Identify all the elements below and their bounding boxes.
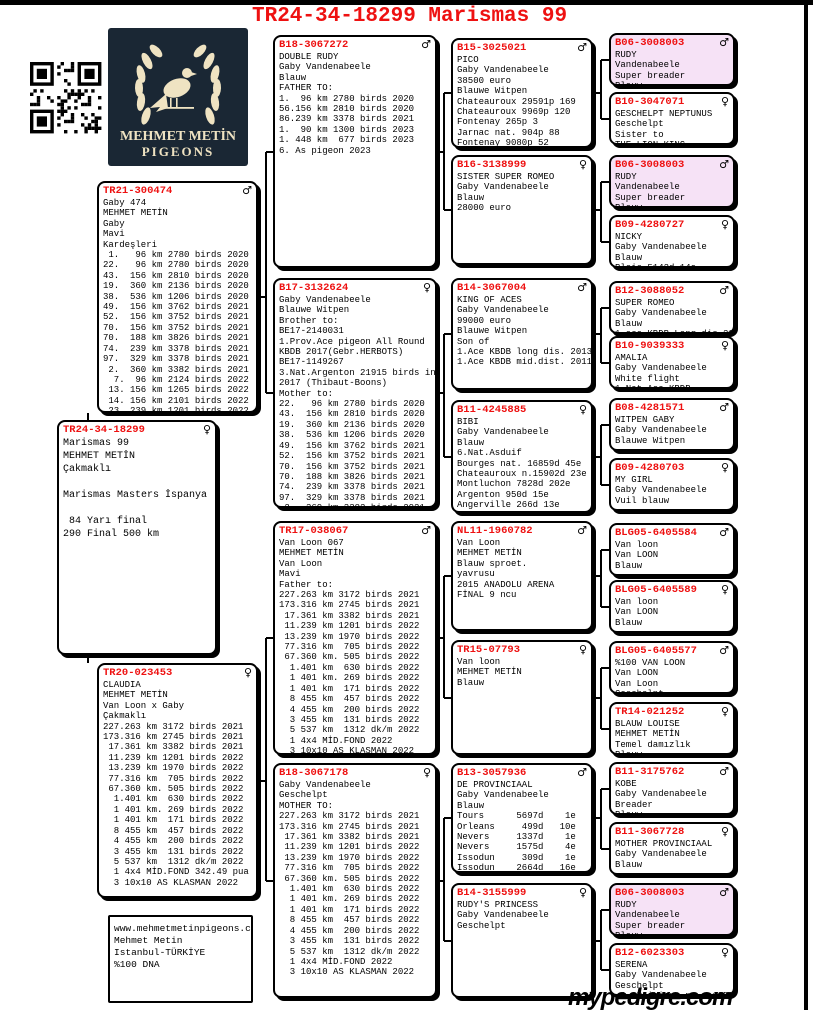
sex-symbol: ♂ <box>577 767 587 778</box>
ring-number: B13-3057936 <box>457 767 526 779</box>
pedigree-connector <box>601 59 609 61</box>
pedigree-connector <box>444 456 451 458</box>
ring-number: B15-3025021 <box>457 42 526 54</box>
box-details: Gaby Vandenabeele Geschelpt MOTHER TO: 2… <box>279 780 431 978</box>
box-details: WITPEN GABY Gaby Vandenabeele Blauwe Wit… <box>615 415 729 446</box>
ring-number: BLG05-6405589 <box>615 584 697 596</box>
ring-number: B10-9039333 <box>615 340 684 352</box>
pigeon-box-B11-3067728-g14: B11-3067728♀MOTHER PROVINCIAAL Gaby Vand… <box>609 822 735 875</box>
pedigree-connector <box>266 151 274 153</box>
sex-symbol: ♂ <box>577 525 587 536</box>
sex-symbol: ♂ <box>242 185 252 196</box>
box-details: NICKY Gaby Vandenabeele Blauw Blois 5142… <box>615 232 729 268</box>
sex-symbol: ♀ <box>579 404 587 415</box>
ring-number: B11-3067728 <box>615 826 684 838</box>
pedigree-connector <box>600 425 602 485</box>
ring-number: B08-4281571 <box>615 402 684 414</box>
pigeon-box-B14-3155999: B14-3155999♀ RUDY'S PRINCESS Gaby Vanden… <box>451 883 593 998</box>
pedigree-connector <box>444 209 451 211</box>
pigeon-box-B06-3008003-g3: B06-3008003♂RUDY Vandenabeele Super brea… <box>609 155 735 208</box>
box-details: CLAUDIA MEHMET METİN Van Loon x Gaby Çak… <box>103 680 252 888</box>
sex-symbol: ♀ <box>721 219 729 230</box>
pigeon-box-TR24-34-18299-subject: TR24-34-18299♀ Marismas 99 MEHMET METİN … <box>57 420 217 655</box>
pedigree-connector <box>600 550 602 607</box>
box-details: SUPER ROMEO Gaby Vandenabeele Blauw 1.ac… <box>615 298 729 334</box>
pedigree-connector <box>601 362 609 364</box>
pigeon-box-B10-3047071-g2: B10-3047071♀GESCHELPT NEPTUNUS Geschelpt… <box>609 92 735 145</box>
ring-number: TR14-021252 <box>615 706 684 718</box>
box-details: MOTHER PROVINCIAAL Gaby Vandenabeele Bla… <box>615 839 729 870</box>
pedigree-connector <box>265 152 267 394</box>
pedigree-connector <box>600 60 602 119</box>
logo-line1: MEHMET METİN <box>120 127 236 144</box>
ring-number: B06-3008003 <box>615 887 684 899</box>
box-details: PICO Gaby Vandenabeele 38500 euro Blauwe… <box>457 55 587 148</box>
sex-symbol: ♂ <box>421 39 431 50</box>
sex-symbol: ♂ <box>421 525 431 536</box>
pedigree-connector <box>601 181 609 183</box>
logo-line2: PIGEONS <box>142 144 215 159</box>
pedigree-connector <box>601 484 609 486</box>
pedigree-connector <box>600 789 602 849</box>
box-details: RUDY Vandenabeele Super breader Blauw <box>615 900 729 936</box>
ring-number: B16-3138999 <box>457 159 526 171</box>
pedigree-connector <box>600 910 602 970</box>
page-title: TR24-34-18299 Marismas 99 <box>252 5 567 28</box>
pigeon-box-B16-3138999: B16-3138999♀ SISTER SUPER ROMEO Gaby Van… <box>451 155 593 265</box>
sex-symbol: ♀ <box>423 767 431 778</box>
box-details: Van loon Van LOON Blauw <box>615 597 729 628</box>
box-details: AMALIA Gaby Vandenabeele White flight 1.… <box>615 353 729 389</box>
ring-number: B18-3067178 <box>279 767 348 779</box>
box-details: DE PROVINCIAAL Gaby Vandenabeele Blauw T… <box>457 780 587 873</box>
ring-number: B17-3132624 <box>279 282 348 294</box>
sex-symbol: ♀ <box>721 462 729 473</box>
pedigree-connector <box>601 307 609 309</box>
pedigree-connector <box>601 549 609 551</box>
pigeon-box-TR21-300474: TR21-300474♂ Gaby 474 MEHMET METİN Gaby … <box>97 181 258 413</box>
ring-number: B12-6023303 <box>615 947 684 959</box>
pedigree-connector <box>601 118 609 120</box>
sex-symbol: ♀ <box>721 706 729 717</box>
pigeon-box-BLG05-6405577-g11: BLG05-6405577♂%100 VAN LOON Van LOON Van… <box>609 641 735 694</box>
ring-number: B09-4280703 <box>615 462 684 474</box>
pigeon-box-B15-3025021: B15-3025021♂ PICO Gaby Vandenabeele 3850… <box>451 38 593 148</box>
pigeon-box-B09-4280727-g4: B09-4280727♀NICKY Gaby Vandenabeele Blau… <box>609 215 735 268</box>
box-details: KING OF ACES Gaby Vandenabeele 99000 eur… <box>457 295 587 368</box>
pigeon-box-BLG05-6405584-g9: BLG05-6405584♂Van loon Van LOON Blauw <box>609 523 735 576</box>
ring-number: NL11-1960782 <box>457 525 533 537</box>
sex-symbol: ♀ <box>721 947 729 958</box>
box-details: Gaby Vandenabeele Blauwe Witpen Brother … <box>279 295 431 508</box>
contact-box: www.mehmetmetinpigeons.com Mehmet Metin … <box>108 915 253 1003</box>
pedigree-connector <box>601 848 609 850</box>
ring-number: B12-3088052 <box>615 285 684 297</box>
box-details: RUDY Vandenabeele Super breader Blauw <box>615 50 729 86</box>
pedigree-connector <box>601 424 609 426</box>
pedigree-connector <box>600 308 602 363</box>
pedigree-connector <box>601 728 609 730</box>
sex-symbol: ♂ <box>577 282 587 293</box>
pigeon-box-B18-3067178: B18-3067178♀ Gaby Vandenabeele Geschelpt… <box>273 763 437 998</box>
box-details: RUDY'S PRINCESS Gaby Vandenabeele Gesche… <box>457 900 587 931</box>
pigeon-box-B13-3057936: B13-3057936♂ DE PROVINCIAAL Gaby Vandena… <box>451 763 593 873</box>
ring-number: TR24-34-18299 <box>63 424 145 436</box>
box-details: MY GIRL Gaby Vandenabeele Vuil blauw <box>615 475 729 506</box>
pigeon-box-B06-3008003-g1: B06-3008003♂RUDY Vandenabeele Super brea… <box>609 33 735 86</box>
ring-number: B14-3067004 <box>457 282 526 294</box>
pedigree-connector <box>601 909 609 911</box>
contact-details: www.mehmetmetinpigeons.com Mehmet Metin … <box>114 919 247 971</box>
pigeon-box-B08-4281571-g7: B08-4281571♂WITPEN GABY Gaby Vandenabeel… <box>609 398 735 451</box>
pigeon-box-B17-3132624: B17-3132624♀ Gaby Vandenabeele Blauwe Wi… <box>273 278 437 508</box>
pedigree-connector <box>444 333 451 335</box>
ring-number: TR21-300474 <box>103 185 172 197</box>
sex-symbol: ♂ <box>719 645 729 656</box>
box-details: Van loon MEHMET METİN Blauw <box>457 657 587 688</box>
ring-number: B06-3008003 <box>615 37 684 49</box>
ring-number: B14-3155999 <box>457 887 526 899</box>
pigeon-box-B14-3067004: B14-3067004♂ KING OF ACES Gaby Vandenabe… <box>451 278 593 390</box>
sex-symbol: ♀ <box>203 424 211 435</box>
box-details: GESCHELPT NEPTUNUS Geschelpt Sister to T… <box>615 109 729 145</box>
pedigree-connector <box>601 606 609 608</box>
pigeon-box-B18-3067272: B18-3067272♂ DOUBLE RUDY Gaby Vandenabee… <box>273 35 437 268</box>
pedigree-connector <box>443 576 445 698</box>
box-details: Marismas 99 MEHMET METİN Çakmaklı Marism… <box>63 437 211 541</box>
box-details: %100 VAN LOON Van LOON Van Loon Geschelp… <box>615 658 729 694</box>
qr-code-icon <box>28 60 102 140</box>
pedigree-connector <box>443 93 445 210</box>
pedigree-connector <box>443 818 445 941</box>
ring-number: B11-4245885 <box>457 404 526 416</box>
box-details: Gaby 474 MEHMET METİN Gaby Mavi Kardeşle… <box>103 198 252 413</box>
sex-symbol: ♀ <box>721 96 729 107</box>
pedigree-connector <box>443 334 445 457</box>
pedigree-connector <box>601 667 609 669</box>
pedigree-connector <box>444 940 451 942</box>
pedigree-connector <box>444 697 451 699</box>
sex-symbol: ♀ <box>579 887 587 898</box>
pedigree-connector <box>601 969 609 971</box>
ring-number: B18-3067272 <box>279 39 348 51</box>
pedigree-connector <box>444 92 451 94</box>
sex-symbol: ♀ <box>244 667 252 678</box>
box-details: DOUBLE RUDY Gaby Vandenabeele Blauw FATH… <box>279 52 431 156</box>
box-details: BIBI Gaby Vandenabeele Blauw 6.Nat.Asdui… <box>457 417 587 511</box>
ring-number: B06-3008003 <box>615 159 684 171</box>
ring-number: TR20-023453 <box>103 667 172 679</box>
pigeon-box-TR17-038067: TR17-038067♂ Van Loon 067 MEHMET METİN V… <box>273 521 437 755</box>
pedigree-connector <box>600 668 602 729</box>
sex-symbol: ♂ <box>719 766 729 777</box>
sex-symbol: ♂ <box>719 402 729 413</box>
box-details: Van loon Van LOON Blauw <box>615 540 729 571</box>
pigeon-box-B11-4245885: B11-4245885♀ BIBI Gaby Vandenabeele Blau… <box>451 400 593 513</box>
pedigree-connector <box>600 182 602 242</box>
pedigree-connector <box>265 638 267 881</box>
pigeon-box-TR15-07793: TR15-07793♀ Van loon MEHMET METİN Blauw <box>451 640 593 755</box>
pedigree-page: TR24-34-18299 Marismas 99 <box>0 0 813 1024</box>
pigeon-box-B11-3175762-g13: B11-3175762♂KOBE Gaby Vandenabeele Bread… <box>609 762 735 815</box>
sex-symbol: ♂ <box>577 42 587 53</box>
pedigree-connector <box>87 655 89 663</box>
pigeon-box-TR20-023453: TR20-023453♀ CLAUDIA MEHMET METİN Van Lo… <box>97 663 258 898</box>
sex-symbol: ♀ <box>579 159 587 170</box>
pigeon-box-B06-3008003-g15: B06-3008003♂RUDY Vandenabeele Super brea… <box>609 883 735 936</box>
pigeon-box-NL11-1960782: NL11-1960782♂ Van Loon MEHMET METİN Blau… <box>451 521 593 631</box>
pedigree-connector <box>266 880 274 882</box>
sex-symbol: ♂ <box>719 887 729 898</box>
ring-number: TR15-07793 <box>457 644 520 656</box>
ring-number: B09-4280727 <box>615 219 684 231</box>
pigeon-box-TR14-021252-g12: TR14-021252♀BLAUW LOUISE MEHMET METİN Te… <box>609 702 735 755</box>
pigeon-box-B10-9039333-g6: B10-9039333♀AMALIA Gaby Vandenabeele Whi… <box>609 336 735 389</box>
footer-brand: mypedigre.com <box>568 984 732 1012</box>
pedigree-connector <box>601 241 609 243</box>
sex-symbol: ♂ <box>719 37 729 48</box>
box-details: Van Loon MEHMET METİN Blauw sproet. yavr… <box>457 538 587 600</box>
sex-symbol: ♀ <box>721 340 729 351</box>
sex-symbol: ♂ <box>719 159 729 170</box>
pedigree-connector <box>87 413 89 420</box>
pigeon-box-B12-3088052-g5: B12-3088052♂SUPER ROMEO Gaby Vandenabeel… <box>609 281 735 334</box>
box-details: BLAUW LOUISE MEHMET METİN Temel damızlık… <box>615 719 729 755</box>
ring-number: BLG05-6405577 <box>615 645 697 657</box>
pedigree-connector <box>444 575 451 577</box>
sex-symbol: ♂ <box>719 285 729 296</box>
pedigree-connector <box>601 788 609 790</box>
pigeon-box-BLG05-6405589-g10: BLG05-6405589♀Van loon Van LOON Blauw <box>609 580 735 633</box>
sex-symbol: ♀ <box>423 282 431 293</box>
right-rule <box>804 5 808 1010</box>
box-details: KOBE Gaby Vandenabeele Breader Blauw <box>615 779 729 815</box>
loft-logo: MEHMET METİN PIGEONS <box>108 28 248 166</box>
sex-symbol: ♀ <box>579 644 587 655</box>
ring-number: B11-3175762 <box>615 766 684 778</box>
sex-symbol: ♀ <box>721 584 729 595</box>
pedigree-connector <box>444 817 451 819</box>
ring-number: BLG05-6405584 <box>615 527 697 539</box>
sex-symbol: ♂ <box>719 527 729 538</box>
box-details: RUDY Vandenabeele Super breader Blauw <box>615 172 729 208</box>
box-details: SISTER SUPER ROMEO Gaby Vandenabeele Bla… <box>457 172 587 214</box>
box-details: Van Loon 067 MEHMET METİN Van Loon Mavi … <box>279 538 431 755</box>
pedigree-connector <box>266 637 274 639</box>
ring-number: B10-3047071 <box>615 96 684 108</box>
sex-symbol: ♀ <box>721 826 729 837</box>
pedigree-connector <box>266 392 274 394</box>
pigeon-box-B09-4280703-g8: B09-4280703♀MY GIRL Gaby Vandenabeele Vu… <box>609 458 735 511</box>
ring-number: TR17-038067 <box>279 525 348 537</box>
